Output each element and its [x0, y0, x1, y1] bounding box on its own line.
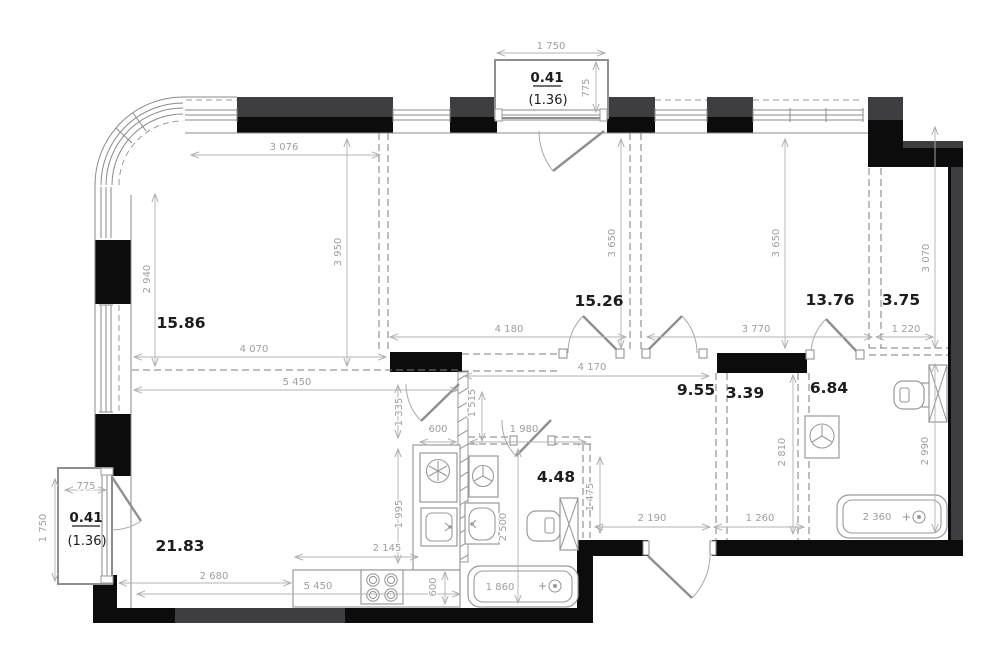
balcony-top-area: 0.41 — [530, 70, 563, 86]
dim-1860-tub: 1 860 — [486, 582, 515, 593]
window-top-4 — [753, 108, 863, 122]
door-room-center — [568, 316, 620, 353]
balcony-left-area-full: (1.36) — [67, 534, 106, 549]
dim-1220: 1 220 — [892, 324, 921, 335]
fridge-icon — [420, 453, 457, 502]
kitchen-sink-icon — [421, 508, 457, 546]
room-label-9-55: 9.55 — [677, 381, 715, 399]
dim-3076: 3 076 — [270, 142, 299, 153]
dim-775-left: 775 — [76, 481, 95, 492]
dim-2145: 2 145 — [373, 543, 402, 554]
dim-1995: 1 995 — [394, 500, 405, 529]
floor-plan-canvas: 1 750 775 3 076 2 940 3 950 4 070 5 450 … — [0, 0, 1000, 660]
dim-3070: 3 070 — [921, 244, 932, 273]
dim-4170: 4 170 — [578, 362, 607, 373]
dim-5450-bottom: 5 450 — [304, 581, 333, 592]
stove-icon — [361, 570, 403, 604]
vent-shaft-icon — [560, 498, 578, 550]
dim-2500: 2 500 — [498, 513, 509, 542]
window-left-1 — [101, 187, 111, 238]
floor-plan: 1 750 775 3 076 2 940 3 950 4 070 5 450 … — [0, 0, 1000, 660]
door-entrance — [648, 556, 710, 598]
dim-600-stove: 600 — [428, 577, 439, 596]
dim-1475: 1 475 — [585, 483, 596, 512]
balcony-top-area-full: (1.36) — [528, 93, 567, 108]
dim-3770: 3 770 — [742, 324, 771, 335]
dim-4180: 4 180 — [495, 324, 524, 335]
room-label-3-39: 3.39 — [726, 384, 764, 402]
toilet-icon — [527, 511, 560, 541]
dim-1750-left: 1 750 — [38, 514, 49, 543]
window-top-3 — [655, 108, 707, 122]
dim-1335: 1 335 — [394, 398, 405, 427]
door-balcony-top — [539, 131, 604, 171]
washing-machine-2-icon — [805, 416, 839, 458]
dim-2990: 2 990 — [920, 437, 931, 466]
dim-1750-top: 1 750 — [537, 41, 566, 52]
room-label-6-84: 6.84 — [810, 379, 848, 397]
room-label-21-83: 21.83 — [155, 537, 204, 555]
dim-2940: 2 940 — [142, 265, 153, 294]
dim-1515: 1 515 — [467, 389, 478, 418]
window-top-1 — [185, 108, 237, 122]
bathroom-sink-icon — [465, 503, 499, 544]
vent-shaft-2-icon — [929, 365, 947, 422]
room-label-3-75: 3.75 — [882, 291, 920, 309]
room-label-15-26: 15.26 — [574, 292, 623, 310]
dim-3650-b: 3 650 — [771, 229, 782, 258]
washing-machine-icon — [469, 456, 498, 497]
dim-2190: 2 190 — [638, 513, 667, 524]
dim-3950: 3 950 — [333, 238, 344, 267]
dim-4070: 4 070 — [240, 344, 269, 355]
dim-2810: 2 810 — [777, 438, 788, 467]
room-label-4-48: 4.48 — [537, 468, 575, 486]
wall-kitchen-stub — [390, 352, 462, 372]
door-balcony-left — [112, 477, 141, 530]
dim-600-door: 600 — [428, 424, 447, 435]
dim-775-top: 775 — [581, 78, 592, 97]
room-label-15-86: 15.86 — [156, 314, 205, 332]
dim-3650-a: 3 650 — [607, 229, 618, 258]
door-room-right — [645, 316, 697, 353]
window-left-2 — [99, 305, 113, 412]
dim-2680: 2 680 — [200, 571, 229, 582]
toilet-2-icon — [894, 381, 930, 409]
dim-1980: 1 980 — [510, 424, 539, 435]
window-top-2 — [393, 108, 450, 122]
bathtub-icon — [468, 566, 578, 607]
wall-bathroom-stub — [717, 353, 807, 373]
dim-5450-top: 5 450 — [283, 377, 312, 388]
dim-2360-tub: 2 360 — [863, 512, 892, 523]
dim-1260: 1 260 — [746, 513, 775, 524]
bathtub-2-icon — [837, 495, 947, 538]
room-label-13-76: 13.76 — [805, 291, 854, 309]
balcony-left-area: 0.41 — [69, 510, 102, 526]
